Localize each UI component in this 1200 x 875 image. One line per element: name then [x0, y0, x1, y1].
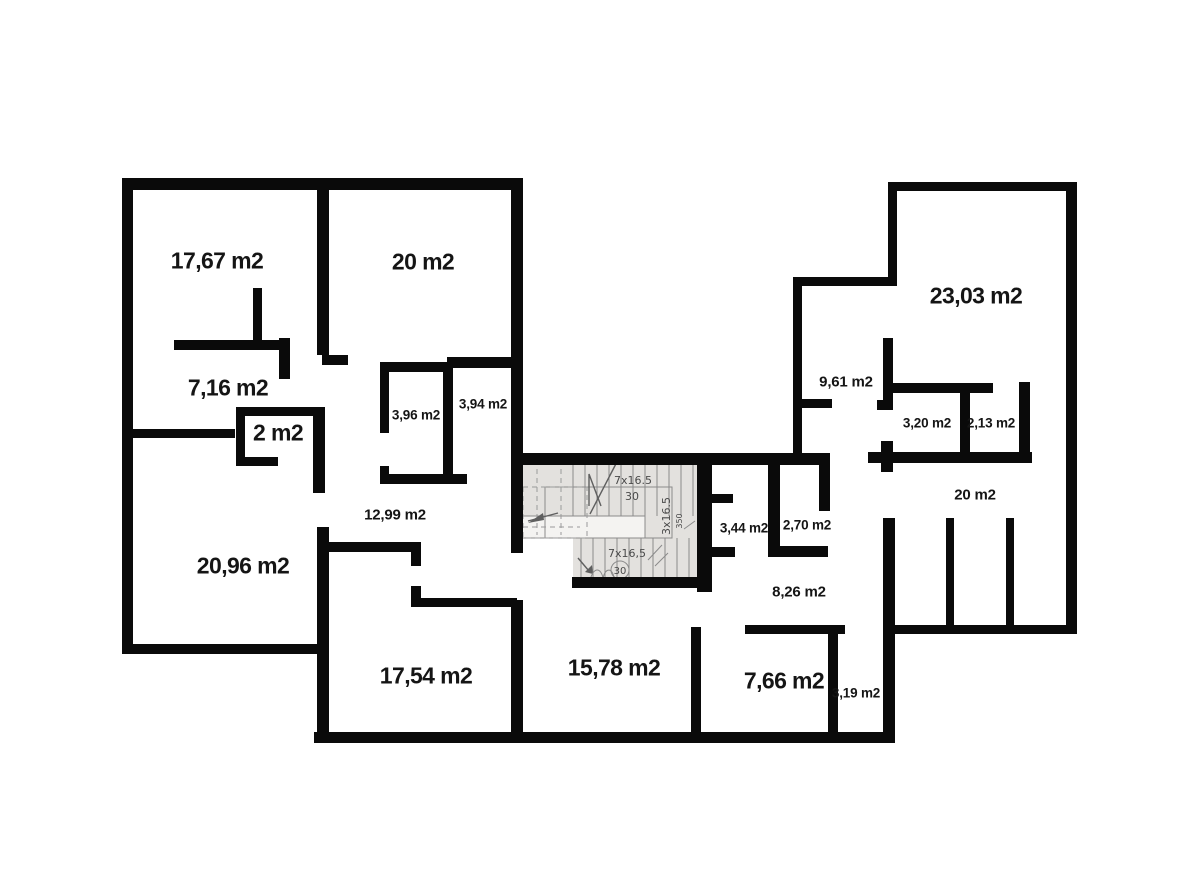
stair-label-up-steps: 7x16.5 [614, 474, 652, 487]
room-label-2: 2 m2 [253, 420, 303, 447]
room-label-3-20: 3,20 m2 [903, 416, 951, 431]
room-label-23-03: 23,03 m2 [930, 283, 1022, 310]
stair-label-side-steps: 3x16.5 [660, 497, 673, 535]
room-label-2-13: 2,13 m2 [967, 416, 1015, 431]
room-label-20-96: 20,96 m2 [197, 553, 289, 580]
room-label-3-19: 3,19 m2 [832, 686, 880, 701]
room-label-12-99: 12,99 m2 [364, 507, 426, 524]
stair-label-down-steps: 7x16,5 [608, 547, 646, 560]
stair-label-up-tread: 30 [625, 490, 639, 503]
staircase: 7x16.5 30 3x16.5 350 7x16,5 30 [517, 455, 697, 580]
room-label-9-61: 9,61 m2 [819, 374, 873, 391]
room-label-3-44: 3,44 m2 [720, 521, 768, 536]
room-label-3-96: 3,96 m2 [392, 408, 440, 423]
stair-label-down-tread: 30 [614, 566, 627, 577]
room-label-3-94: 3,94 m2 [459, 397, 507, 412]
stair-label-side-width: 350 [675, 513, 684, 528]
room-label-7-16: 7,16 m2 [188, 375, 268, 402]
floor-plan: 7x16.5 30 3x16.5 350 7x16,5 30 [0, 0, 1200, 875]
room-label-20: 20 m2 [392, 249, 454, 276]
room-label-8-26: 8,26 m2 [772, 584, 826, 601]
floor-plan-drawing: 7x16.5 30 3x16.5 350 7x16,5 30 [0, 0, 1200, 875]
room-label-17-67: 17,67 m2 [171, 248, 263, 275]
room-label-7-66: 7,66 m2 [744, 668, 824, 695]
room-label-20-right: 20 m2 [954, 487, 996, 504]
room-label-2-70: 2,70 m2 [783, 518, 831, 533]
room-label-15-78: 15,78 m2 [568, 655, 660, 682]
room-label-17-54: 17,54 m2 [380, 663, 472, 690]
